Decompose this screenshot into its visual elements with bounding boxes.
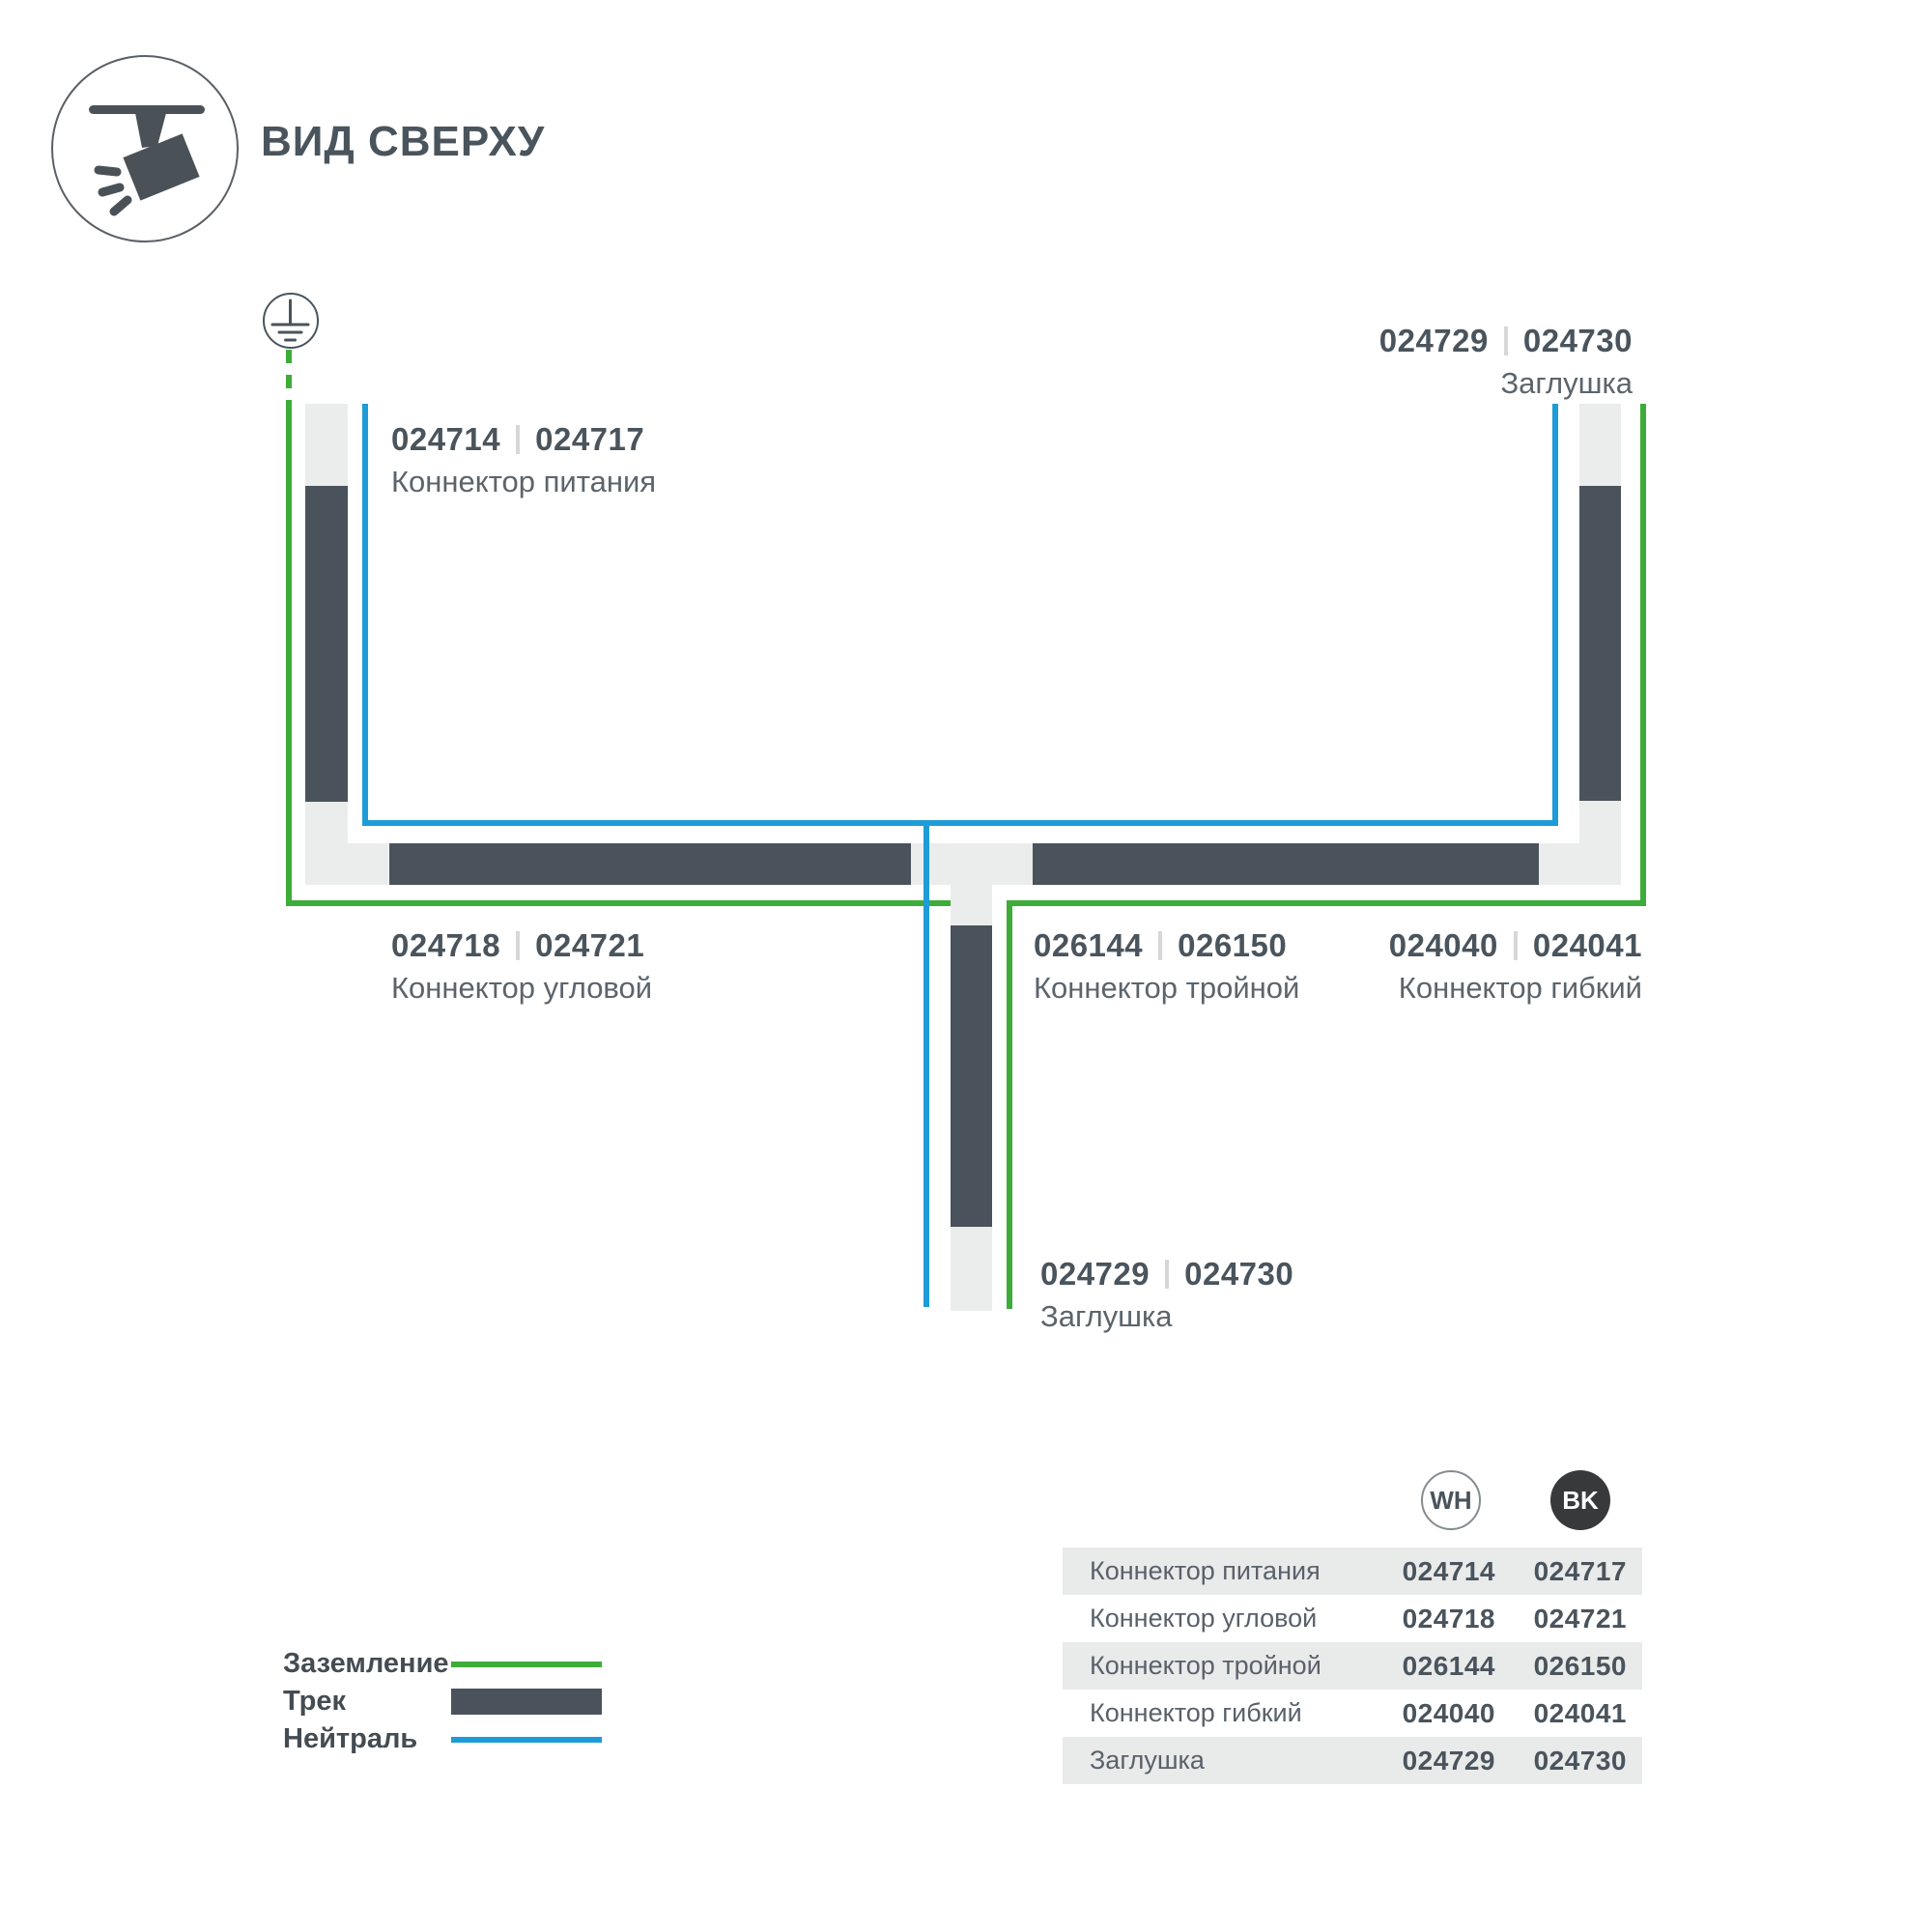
track-light-logo — [51, 55, 239, 242]
label-corner-connector: 024718 024721 Коннектор угловой — [391, 927, 652, 1006]
track-light-icon — [53, 57, 241, 244]
part-code-wh: 026144 — [1403, 1651, 1495, 1682]
part-name: Коннектор тройной — [1063, 1651, 1321, 1681]
code-separator — [1158, 931, 1162, 960]
legend-label: Заземление — [283, 1648, 451, 1680]
code-bk: 026150 — [1178, 927, 1287, 964]
ground-wire-right-vertical — [1640, 404, 1646, 906]
legend-label: Трек — [283, 1686, 451, 1718]
label-flex-connector: 024040 024041 Коннектор гибкий — [1389, 927, 1642, 1006]
part-code-bk: 026150 — [1534, 1651, 1627, 1682]
page-title: ВИД СВЕРХУ — [261, 118, 545, 166]
ground-wire-middle-vertical — [1007, 900, 1012, 1309]
code-bk: 024721 — [535, 927, 644, 964]
part-code-bk: 024730 — [1534, 1746, 1627, 1776]
ground-glyph — [265, 295, 316, 346]
table-row: Коннектор тройной 026144 026150 — [1063, 1642, 1642, 1690]
table-row: Коннектор угловой 024718 024721 — [1063, 1595, 1642, 1642]
code-wh: 024729 — [1040, 1256, 1150, 1293]
label-name: Коннектор тройной — [1034, 971, 1299, 1006]
column-header-black: BK — [1550, 1470, 1610, 1530]
part-name: Коннектор гибкий — [1063, 1698, 1302, 1728]
label-name: Заглушка — [1379, 366, 1633, 401]
label-name: Коннектор угловой — [391, 971, 652, 1006]
part-name: Коннектор питания — [1063, 1556, 1321, 1586]
blue-line-swatch — [451, 1737, 602, 1743]
neutral-wire-middle-vertical — [923, 820, 929, 1307]
corner-connector-left — [305, 843, 388, 885]
code-wh: 026144 — [1034, 927, 1143, 964]
track-horizontal-bar-right — [1033, 843, 1539, 885]
track-right-bar — [1579, 486, 1621, 801]
code-bk: 024717 — [535, 421, 644, 458]
table-row: Заглушка 024729 024730 — [1063, 1737, 1642, 1784]
neutral-wire-horizontal — [362, 820, 1558, 826]
legend-item-ground: Заземление — [283, 1645, 602, 1683]
code-separator — [1504, 327, 1508, 355]
ground-wire-left-vertical — [286, 400, 292, 906]
part-code-bk: 024717 — [1534, 1556, 1627, 1587]
endcap-bottom-body — [951, 1227, 992, 1311]
code-separator — [516, 425, 520, 454]
code-wh: 024718 — [391, 927, 500, 964]
code-bk: 024041 — [1533, 927, 1642, 964]
ground-symbol — [263, 293, 319, 349]
part-code-wh: 024714 — [1403, 1556, 1495, 1587]
neutral-wire-left-vertical — [362, 404, 368, 826]
table-row: Коннектор гибкий 024040 024041 — [1063, 1690, 1642, 1737]
ground-wire-bottom-left — [286, 900, 951, 906]
track-horizontal-bar-left — [389, 843, 911, 885]
legend-item-track: Трек — [283, 1683, 602, 1720]
page: ВИД СВЕРХУ 024714 — [0, 0, 1932, 1932]
code-bk: 024730 — [1523, 323, 1633, 359]
part-code-wh: 024040 — [1403, 1698, 1495, 1729]
part-code-wh: 024718 — [1403, 1604, 1495, 1634]
legend-item-neutral: Нейтраль — [283, 1720, 602, 1758]
part-code-bk: 024721 — [1534, 1604, 1627, 1634]
track-bar-swatch — [451, 1689, 602, 1715]
table-row: Коннектор питания 024714 024717 — [1063, 1548, 1642, 1595]
code-wh: 024714 — [391, 421, 500, 458]
column-header-white: WH — [1421, 1470, 1481, 1530]
label-power-connector: 024714 024717 Коннектор питания — [391, 421, 656, 499]
part-name: Заглушка — [1063, 1746, 1205, 1776]
neutral-wire-right-vertical — [1552, 404, 1558, 826]
code-separator — [1165, 1260, 1169, 1289]
parts-table: WH BK Коннектор питания 024714 024717 Ко… — [1063, 1548, 1642, 1784]
code-separator — [516, 931, 520, 960]
label-name: Коннектор гибкий — [1389, 971, 1642, 1006]
part-code-bk: 024041 — [1534, 1698, 1627, 1729]
code-wh: 024040 — [1389, 927, 1498, 964]
ground-wire-bottom-right — [1007, 900, 1646, 906]
code-bk: 024730 — [1184, 1256, 1293, 1293]
ground-wire-dashed — [286, 350, 292, 402]
legend: Заземление Трек Нейтраль — [283, 1645, 602, 1758]
green-line-swatch — [451, 1662, 602, 1667]
label-name: Заглушка — [1040, 1299, 1293, 1334]
track-left-bar — [305, 486, 348, 802]
label-name: Коннектор питания — [391, 465, 656, 499]
code-wh: 024729 — [1379, 323, 1489, 359]
track-middle-leg-bar — [951, 925, 992, 1227]
triple-connector-leg — [951, 885, 992, 925]
label-endcap-bottom: 024729 024730 Заглушка — [1040, 1256, 1293, 1334]
part-code-wh: 024729 — [1403, 1746, 1495, 1776]
label-endcap-top: 024729 024730 Заглушка — [1379, 323, 1633, 401]
code-separator — [1514, 931, 1518, 960]
legend-label: Нейтраль — [283, 1723, 451, 1755]
part-name: Коннектор угловой — [1063, 1604, 1317, 1634]
label-triple-connector: 026144 026150 Коннектор тройной — [1034, 927, 1299, 1006]
